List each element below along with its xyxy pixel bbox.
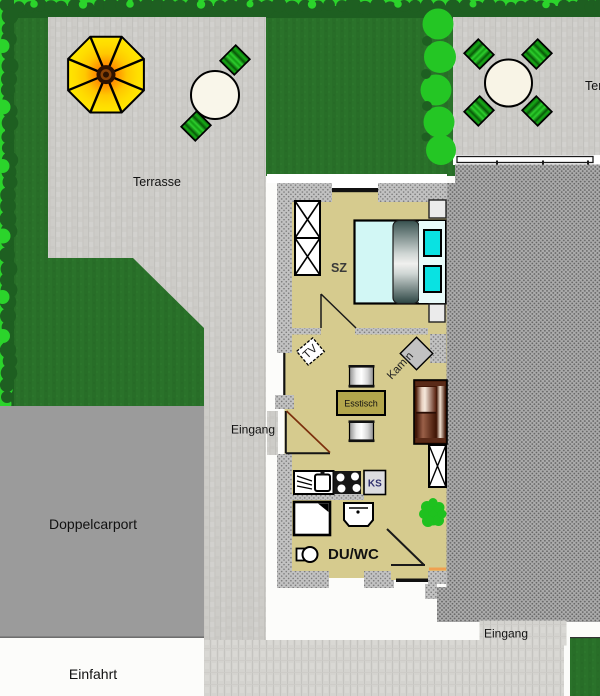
svg-text:Einfahrt: Einfahrt — [69, 666, 117, 682]
svg-text:Doppelcarport: Doppelcarport — [49, 516, 137, 532]
svg-text:Terrasse: Terrasse — [133, 175, 181, 189]
svg-text:Esstisch: Esstisch — [344, 399, 378, 409]
svg-text:Eingang: Eingang — [484, 627, 528, 641]
svg-text:Terrasse: Terrasse — [585, 79, 600, 93]
svg-text:KS: KS — [368, 479, 382, 490]
svg-text:Eingang: Eingang — [231, 423, 275, 437]
svg-text:SZ: SZ — [331, 261, 347, 275]
svg-text:DU/WC: DU/WC — [328, 546, 379, 563]
